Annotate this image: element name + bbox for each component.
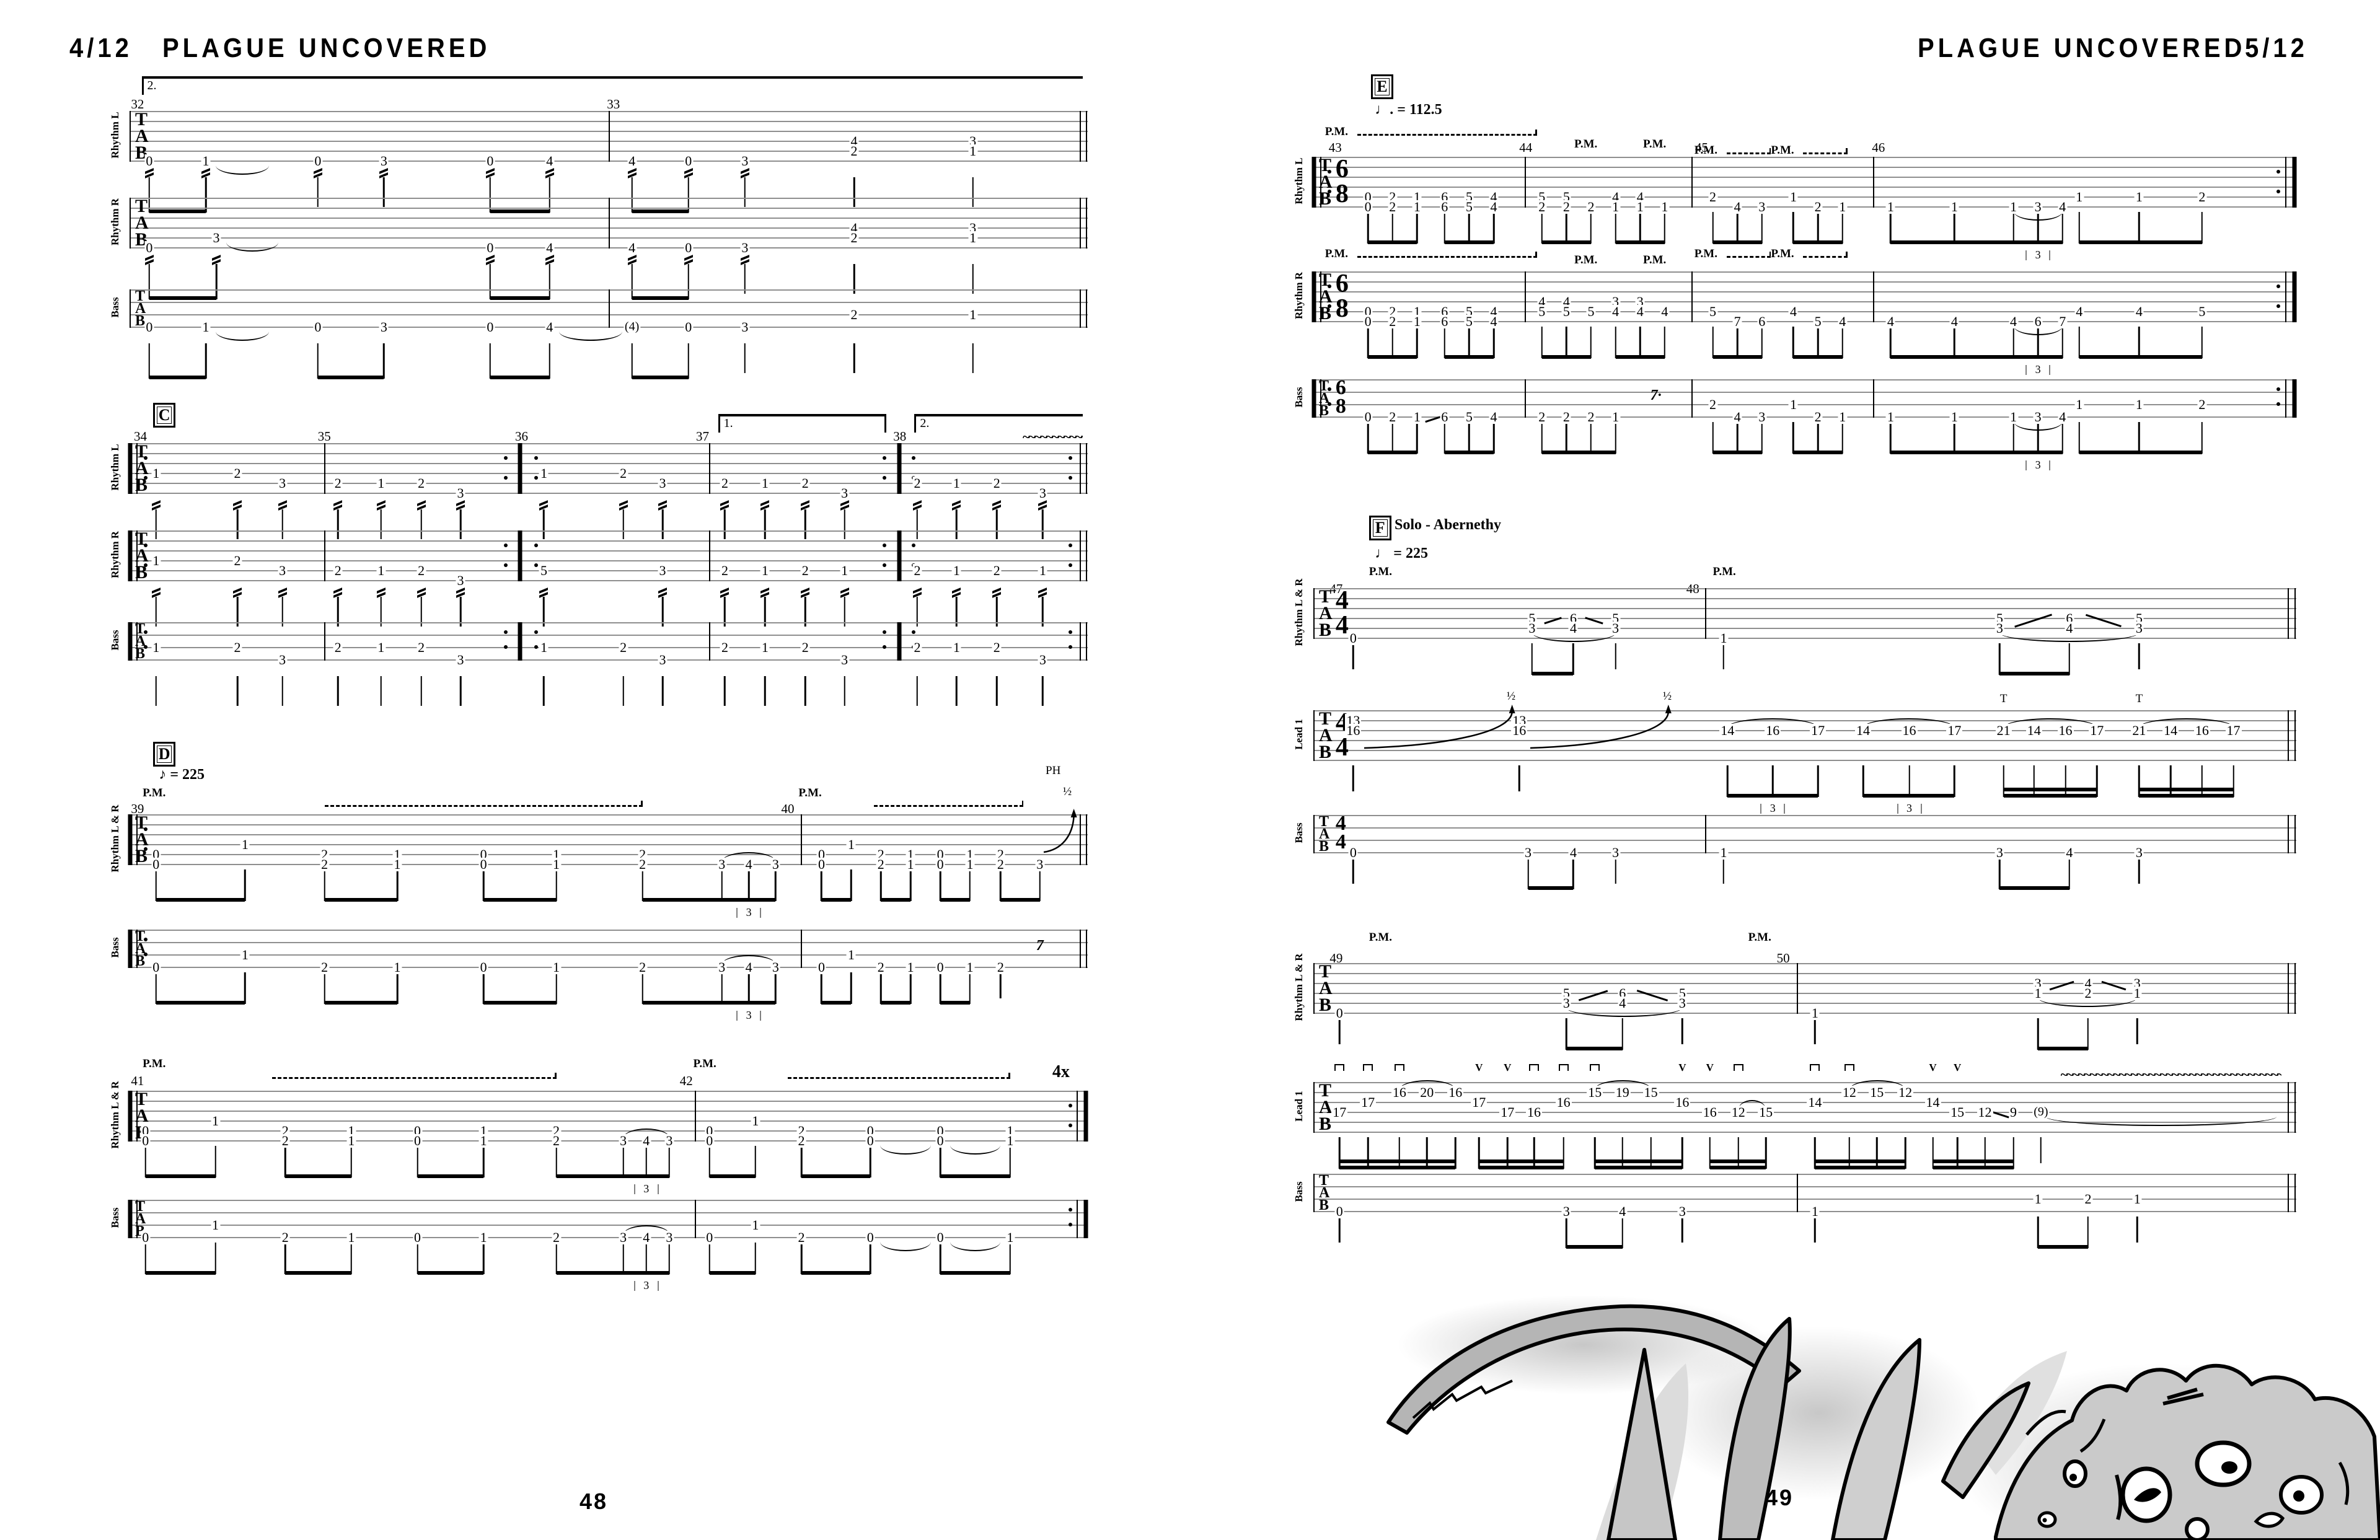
barline xyxy=(695,1200,696,1238)
page-right-title: PLAGUE UNCOVERED xyxy=(1918,33,2246,64)
beam xyxy=(483,898,556,902)
tab-note: 2 xyxy=(992,641,1002,654)
measure-number: 37 xyxy=(696,429,709,444)
note-stem xyxy=(910,972,912,1004)
tab-note: 15 xyxy=(1758,1106,1774,1119)
beam xyxy=(940,1001,970,1005)
tab-note: 3 xyxy=(2135,622,2144,635)
note-stem xyxy=(631,343,633,379)
staff-line xyxy=(130,530,1088,532)
time-signature-bottom: 4 xyxy=(1336,734,1349,760)
tab-note: 2 xyxy=(320,961,329,974)
note-stem xyxy=(2062,212,2064,244)
beam xyxy=(2139,788,2233,791)
repeat-dot xyxy=(534,563,538,567)
beam xyxy=(1542,451,1616,454)
staff-line xyxy=(1314,311,2296,312)
heavy-barline xyxy=(897,622,901,661)
staff-line xyxy=(1314,187,2296,188)
staff-line xyxy=(130,635,1088,636)
note-stem xyxy=(2138,422,2140,454)
note-stem xyxy=(1468,212,1470,244)
tab-note: 14 xyxy=(1925,1096,1941,1109)
beam xyxy=(801,1271,870,1275)
note-stem xyxy=(2012,212,2014,244)
slash-notehead xyxy=(720,500,729,506)
tab-note: 16 xyxy=(1902,724,1918,737)
note-stem xyxy=(996,676,998,706)
staff-line xyxy=(130,622,1088,623)
note-stem xyxy=(662,676,664,706)
pm-end-tick xyxy=(1535,252,1537,258)
tab-note: 0 xyxy=(151,858,161,871)
note-stem xyxy=(284,1146,286,1177)
note-stem xyxy=(880,869,882,901)
tab-note: 1 xyxy=(1005,1231,1015,1244)
repeat-dot xyxy=(144,543,148,547)
tab-note: 1 xyxy=(840,564,849,578)
note-stem xyxy=(2012,422,2014,454)
beam xyxy=(2004,794,2097,798)
tab-note: 1 xyxy=(211,1114,220,1128)
note-stem xyxy=(416,1146,418,1177)
barline xyxy=(2294,710,2296,761)
note-stem xyxy=(755,1243,757,1274)
tab-note: 1 xyxy=(201,320,211,334)
barline xyxy=(1525,379,1526,418)
note-stem xyxy=(724,676,726,706)
slash-notehead xyxy=(684,255,693,261)
staff-line xyxy=(130,443,1088,444)
tab-note: 0 xyxy=(1364,200,1373,214)
staff-instrument-label: Rhythm L xyxy=(109,86,121,185)
tab-note: 1 xyxy=(760,641,770,654)
beam xyxy=(643,1001,776,1005)
tab-note: 3 xyxy=(1678,997,1687,1010)
beam xyxy=(940,1174,1010,1178)
staff-line xyxy=(1314,827,2296,829)
barline xyxy=(801,930,802,968)
tab-note: 1 xyxy=(1611,200,1620,214)
tab-note: 4 xyxy=(1886,315,1895,328)
staff-instrument-label: Rhythm L xyxy=(1293,131,1305,231)
staff-line xyxy=(130,493,1088,494)
tab-note: 6 xyxy=(1440,200,1449,214)
staff-rhythm-l: Rhythm LTAB0103044034231 xyxy=(130,112,1088,161)
beam xyxy=(1616,355,1665,359)
tuplet-3: 3 xyxy=(2026,250,2050,260)
note-stem xyxy=(1566,212,1567,244)
note-stem xyxy=(1000,972,1002,998)
note-stem xyxy=(2136,1217,2138,1243)
tab-note: 4 xyxy=(744,961,754,974)
barline xyxy=(801,814,802,865)
note-stem xyxy=(2201,422,2203,454)
beam xyxy=(557,1174,669,1178)
bend-amount: ½ xyxy=(1663,690,1672,703)
staff-bass: BassTAB4403431343 xyxy=(1314,816,2296,853)
slide-mark xyxy=(2086,614,2122,627)
staff-line xyxy=(1314,1174,2296,1175)
tab-note: 1 xyxy=(2133,1192,2142,1206)
barline xyxy=(1080,530,1081,581)
barline xyxy=(130,289,131,328)
tab-note: 2 xyxy=(1708,190,1717,204)
slash-notehead xyxy=(333,587,342,594)
beam xyxy=(1710,1166,1766,1169)
staff-bass: BassTAB6802165422212431211113411237· xyxy=(1314,380,2296,417)
tempo-marking: ♩. = 112.5 xyxy=(1375,102,1442,118)
tab-note: 16 xyxy=(1702,1106,1718,1119)
repeat-dot xyxy=(504,645,508,649)
note-stem xyxy=(775,972,777,1004)
tab-note: 3 xyxy=(740,320,749,334)
tab-note: 0 xyxy=(684,241,693,255)
note-stem xyxy=(1493,212,1495,244)
tab-note: 3 xyxy=(1523,846,1533,860)
tab-note: 4 xyxy=(2135,305,2144,319)
staff-lead-1: Lead 1TAB4413161316141617141617211416172… xyxy=(1314,711,2296,760)
time-signature-top: 6 xyxy=(1336,271,1349,297)
beam xyxy=(146,1174,216,1178)
tap-indicator: T xyxy=(2136,692,2143,706)
tab-clef-letter: B xyxy=(135,954,145,969)
tab-note: 2 xyxy=(1537,410,1546,424)
palm-mute-dashes: P.M. xyxy=(1727,146,1771,154)
tab-note: 14 xyxy=(1719,724,1735,737)
tab-note: 16 xyxy=(1556,1096,1572,1109)
bend-arrow xyxy=(1042,809,1077,855)
beam xyxy=(1999,672,2069,675)
note-stem xyxy=(1681,1217,1683,1243)
tab-note: 0 xyxy=(144,320,154,334)
note-stem xyxy=(1339,1137,1341,1169)
barline xyxy=(2294,815,2296,853)
tab-note: 17 xyxy=(1331,1106,1347,1119)
note-stem xyxy=(744,343,746,373)
tab-note: 4 xyxy=(1618,1205,1627,1218)
tab-note: 3 xyxy=(1757,200,1766,214)
repeat-dot xyxy=(2276,284,2280,288)
volta-bracket: 1. xyxy=(718,414,887,433)
tab-note: 0 xyxy=(144,241,154,255)
barline xyxy=(1086,111,1087,162)
palm-mute-label: P.M. xyxy=(1695,144,1717,157)
barline xyxy=(130,111,131,162)
beam xyxy=(1793,355,1842,359)
note-stem xyxy=(1367,212,1369,244)
tab-note: 20 xyxy=(1419,1086,1435,1099)
repeat-dot xyxy=(144,847,148,851)
tab-system-0: 2.3233Rhythm LTAB0103044034231Rhythm RTA… xyxy=(130,74,1088,412)
note-stem xyxy=(1566,1217,1567,1248)
staff-line xyxy=(130,1225,1088,1226)
tab-note: 2 xyxy=(801,477,810,490)
note-stem xyxy=(1615,643,1616,669)
note-stem xyxy=(622,676,624,706)
tab-note: 3 xyxy=(212,231,221,245)
tab-note: 2 xyxy=(2083,1192,2092,1206)
note-stem xyxy=(1566,327,1567,358)
beam xyxy=(1542,240,1591,244)
note-stem xyxy=(2062,422,2064,454)
tab-note: 1 xyxy=(2034,987,2043,1000)
page-number-left: 48 xyxy=(580,1489,608,1515)
repeat-dot xyxy=(1069,1124,1072,1127)
note-stem xyxy=(1932,1137,1934,1169)
barline xyxy=(1873,379,1874,418)
note-stem xyxy=(2078,327,2080,358)
note-stem xyxy=(1737,327,1739,358)
note-stem xyxy=(1792,212,1794,244)
tab-note: 3 xyxy=(658,477,668,490)
tab-note: 4 xyxy=(1636,305,1645,319)
slash-notehead xyxy=(233,500,242,506)
note-stem xyxy=(1957,1137,1959,1169)
tab-note: 2 xyxy=(233,554,242,568)
note-stem xyxy=(1792,422,1794,454)
section-title: Solo - Abernethy xyxy=(1395,517,1501,534)
note-stem xyxy=(1444,422,1446,454)
tab-note: 3 xyxy=(1995,846,2004,860)
barline xyxy=(2294,963,2296,1014)
note-stem xyxy=(555,1146,557,1177)
rehearsal-mark: E xyxy=(1371,74,1393,99)
tab-note: 0 xyxy=(684,320,693,334)
measure-number: 38 xyxy=(893,429,906,444)
note-stem xyxy=(1954,212,1955,244)
tab-note: 2 xyxy=(638,858,647,871)
staff-line xyxy=(1314,416,2296,418)
bend-arrow: ½ xyxy=(1529,705,1672,750)
note-stem xyxy=(1339,1217,1341,1243)
note-stem xyxy=(324,972,325,1004)
tuplet-3: 3 xyxy=(737,908,761,918)
barline xyxy=(1086,198,1087,249)
beam xyxy=(821,1001,851,1005)
tab-note: 1 xyxy=(2135,398,2144,411)
slash-notehead xyxy=(486,168,495,174)
tab-note: 1 xyxy=(201,154,211,168)
palm-mute-dashes: P.M. xyxy=(1357,250,1537,258)
tab-clef-letter: B xyxy=(1319,1198,1329,1213)
slash-notehead xyxy=(741,255,749,261)
barline xyxy=(609,289,610,328)
tempo-marking: ♪ = 225 xyxy=(159,767,205,783)
pm-end-tick xyxy=(555,1073,557,1079)
repeat-dot xyxy=(534,645,538,649)
barline xyxy=(324,622,325,661)
beam xyxy=(1793,240,1842,244)
tab-note: 1 xyxy=(346,1231,356,1244)
tab-note: 1 xyxy=(952,641,961,654)
beam xyxy=(1815,1166,1905,1169)
beam xyxy=(940,1271,1010,1275)
beam xyxy=(2038,1047,2088,1050)
tab-note: 4 xyxy=(545,320,554,334)
beam xyxy=(2079,451,2202,454)
tab-note: 3 xyxy=(1611,622,1620,635)
staff-instrument-label: Bass xyxy=(109,898,121,997)
tab-note: 3 xyxy=(1995,622,2004,635)
tab-note: 0 xyxy=(479,858,488,871)
tab-note: 17 xyxy=(1946,724,1962,737)
repeat-dot xyxy=(534,630,538,634)
note-stem xyxy=(1841,327,1843,358)
repeat-dot xyxy=(144,476,148,480)
tab-note: 1 xyxy=(1789,398,1798,411)
tab-note: 1 xyxy=(2133,987,2142,1000)
note-stem xyxy=(144,1243,146,1274)
note-stem xyxy=(1814,1018,1816,1044)
staff-rhythm-r: Rhythm RTAB03044034231 xyxy=(130,198,1088,248)
tab-note: 3 xyxy=(771,858,780,871)
note-stem xyxy=(1399,1137,1401,1169)
beam xyxy=(1595,1159,1682,1163)
note-stem xyxy=(1010,1146,1011,1177)
beam xyxy=(418,1174,484,1178)
tab-note: 3 xyxy=(1562,1205,1571,1218)
tab-note: 2 xyxy=(1388,410,1397,424)
tab-note: 12 xyxy=(1977,1106,1993,1119)
slash-notehead xyxy=(152,500,161,506)
barline xyxy=(1525,157,1526,208)
tab-note: 1 xyxy=(906,961,915,974)
beam xyxy=(1727,794,1818,798)
tab-note: 4 xyxy=(1660,305,1669,319)
staff-bass: BassTAB010304(4)0321 xyxy=(130,290,1088,327)
tab-note: 3 xyxy=(1678,1205,1687,1218)
tab-note: 5 xyxy=(1465,410,1474,424)
slash-notehead xyxy=(152,587,161,594)
note-stem xyxy=(1572,858,1574,889)
note-stem xyxy=(549,343,550,379)
tab-note: 2 xyxy=(996,858,1005,871)
tab-note: 4 xyxy=(2009,315,2018,328)
tab-note: 1 xyxy=(552,858,561,871)
tab-note: 2 xyxy=(552,1134,561,1148)
staff-line xyxy=(1314,321,2296,322)
tab-note: 1 xyxy=(376,477,386,490)
note-stem xyxy=(1532,643,1533,675)
barline xyxy=(2294,588,2296,639)
note-stem xyxy=(1615,212,1616,244)
note-stem xyxy=(1817,212,1819,244)
tie-arc xyxy=(226,242,279,252)
staff-rhythm-l-r: Rhythm L & RTAB05364531314231 xyxy=(1314,964,2296,1013)
note-stem xyxy=(1890,212,1892,244)
barline xyxy=(2288,1082,2289,1133)
pm-end-tick xyxy=(1535,130,1537,136)
note-stem xyxy=(969,869,971,901)
staff-line xyxy=(1314,840,2296,841)
pm-end-tick xyxy=(1846,252,1848,258)
tab-note: 3 xyxy=(379,154,389,168)
pm-end-tick xyxy=(1846,148,1848,154)
tab-clef-letter: B xyxy=(1319,839,1329,854)
measure-number: 33 xyxy=(607,97,620,112)
note-stem xyxy=(721,972,723,1004)
beam xyxy=(643,898,776,902)
heavy-barline xyxy=(128,930,133,968)
tab-note: 7 xyxy=(2058,315,2067,328)
tab-note: 3 xyxy=(1038,486,1047,500)
upstroke-icon: V xyxy=(1954,1062,1961,1074)
repeat-dot xyxy=(504,456,508,460)
heavy-barline xyxy=(1312,379,1316,418)
tab-note: 5 xyxy=(1465,200,1474,214)
note-stem xyxy=(244,869,246,901)
repeat-dot xyxy=(1069,456,1072,460)
tab-note: 2 xyxy=(233,641,242,654)
tie-arc xyxy=(559,332,622,341)
note-stem xyxy=(1905,1137,1906,1169)
tab-note: 0 xyxy=(705,1231,714,1244)
tab-note: 1 xyxy=(952,564,961,578)
tab-note: 2 xyxy=(850,231,859,245)
tab-note: 2 xyxy=(992,564,1002,578)
slash-notehead xyxy=(456,500,465,506)
repeat-dot xyxy=(912,456,915,460)
tab-note: 1 xyxy=(240,948,250,962)
note-stem xyxy=(821,869,822,901)
staff-line xyxy=(1314,281,2296,283)
tab-note: 0 xyxy=(144,154,154,168)
tab-note: 2 xyxy=(1708,398,1717,411)
beam xyxy=(557,1271,669,1275)
tab-note: 1 xyxy=(211,1218,220,1232)
note-stem xyxy=(1681,1137,1683,1169)
staff-line xyxy=(1314,588,2296,589)
staff-line xyxy=(1314,815,2296,816)
tab-note: 16 xyxy=(1765,724,1781,737)
tab-note: 3 xyxy=(1757,410,1766,424)
heavy-barline xyxy=(518,443,522,494)
barline xyxy=(1313,1174,1315,1212)
tie-arc xyxy=(880,1242,931,1251)
tab-note: 2 xyxy=(720,641,729,654)
note-stem xyxy=(870,1146,871,1177)
slash-notehead xyxy=(201,168,210,174)
heavy-barline xyxy=(128,814,133,865)
note-stem xyxy=(721,869,723,901)
note-stem xyxy=(1621,1018,1623,1050)
note-stem xyxy=(1615,858,1616,884)
tab-note: 3 xyxy=(771,961,780,974)
note-stem xyxy=(2096,765,2098,797)
vibrato-squiggle: ~~~~~~~~~~~~~~~~~~~~~~~~~~~~~~~~~~~~~~~~ xyxy=(2061,1067,2282,1080)
tuplet-3: 3 xyxy=(634,1281,658,1291)
tab-note: 2 xyxy=(1814,200,1823,214)
tab-note: 1 xyxy=(346,1134,356,1148)
tab-note: 2 xyxy=(416,641,426,654)
barline xyxy=(709,622,710,661)
tab-note: 4 xyxy=(1789,305,1798,319)
barline xyxy=(1691,157,1693,208)
page-left-title: PLAGUE UNCOVERED xyxy=(162,33,490,64)
note-stem xyxy=(669,1243,671,1274)
note-stem xyxy=(416,1243,418,1274)
beam xyxy=(1713,355,1762,359)
beam xyxy=(1542,355,1591,359)
note-stem xyxy=(1493,422,1495,454)
heavy-barline xyxy=(518,530,522,581)
note-stem xyxy=(1416,212,1418,244)
note-stem xyxy=(853,343,855,373)
repeat-dot xyxy=(2276,387,2280,391)
note-stem xyxy=(2040,1137,2042,1163)
staff-instrument-label: Bass xyxy=(1293,348,1305,447)
